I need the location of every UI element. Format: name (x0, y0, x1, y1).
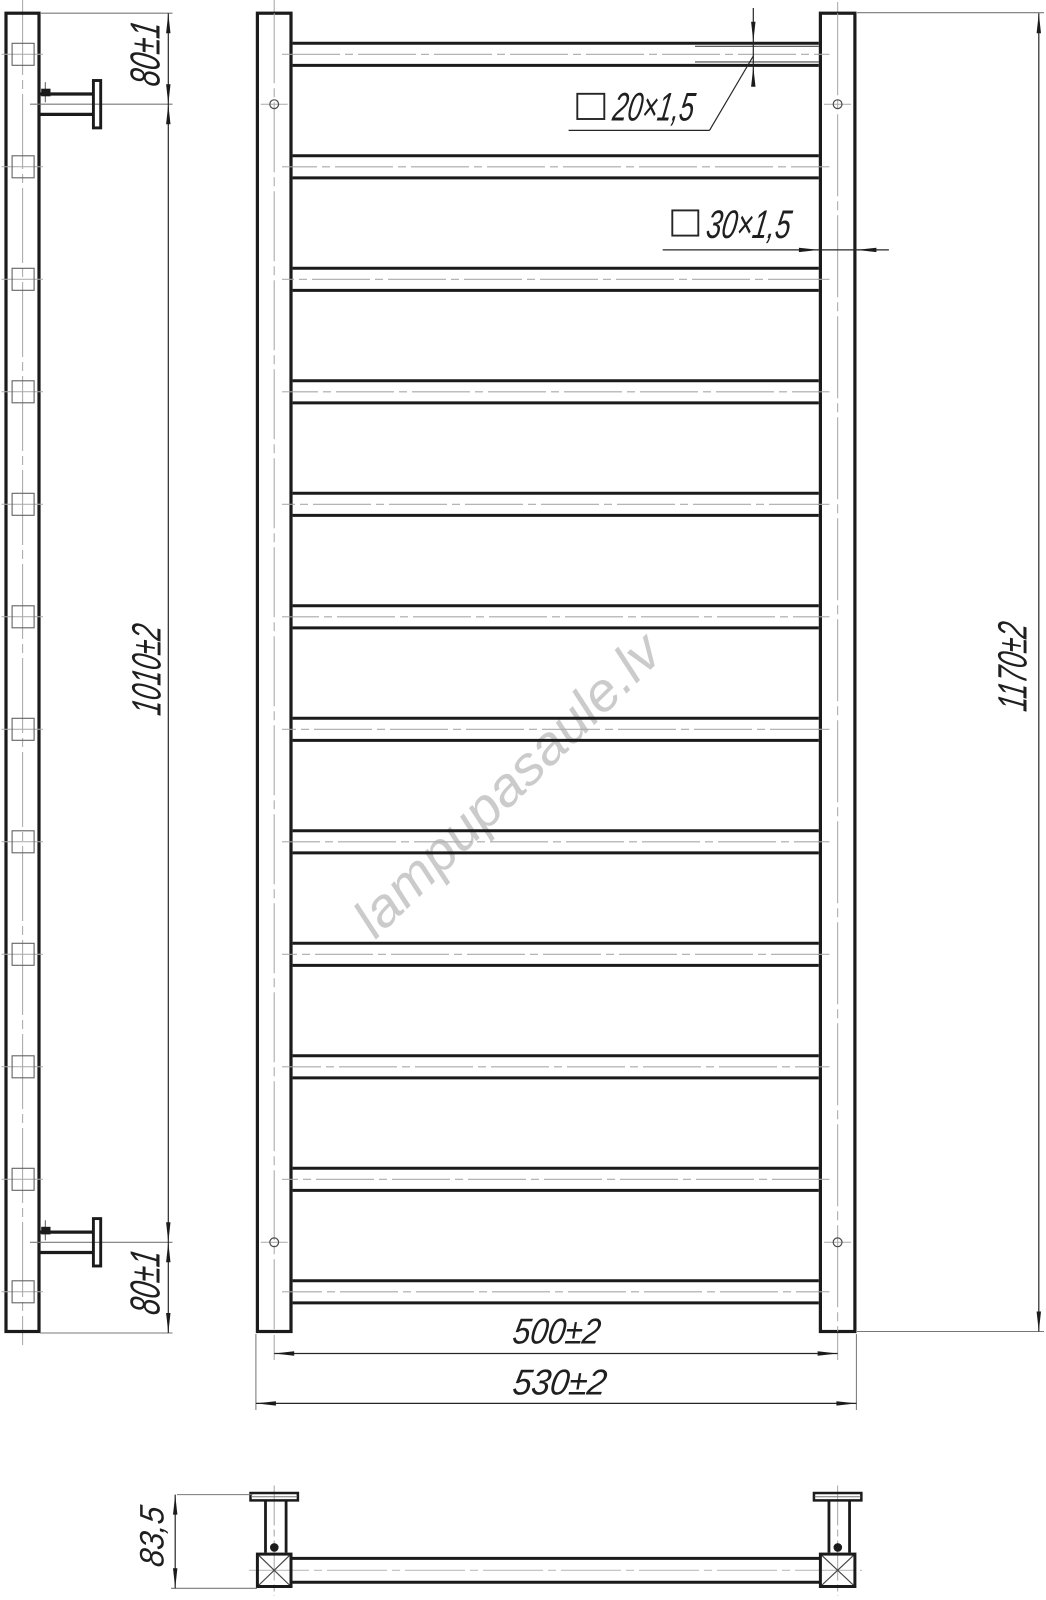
svg-text:lampupasaule.lv: lampupasaule.lv (342, 619, 676, 949)
svg-text:80±1: 80±1 (122, 18, 169, 89)
svg-text:83,5: 83,5 (134, 1502, 172, 1569)
svg-text:30×1,5: 30×1,5 (704, 202, 795, 247)
svg-text:500±2: 500±2 (510, 1311, 603, 1352)
svg-text:1170±2: 1170±2 (990, 619, 1036, 714)
svg-text:80±1: 80±1 (122, 1246, 169, 1317)
svg-text:1010±2: 1010±2 (124, 621, 170, 718)
svg-text:20×1,5: 20×1,5 (609, 85, 698, 130)
svg-text:530±2: 530±2 (510, 1362, 609, 1403)
